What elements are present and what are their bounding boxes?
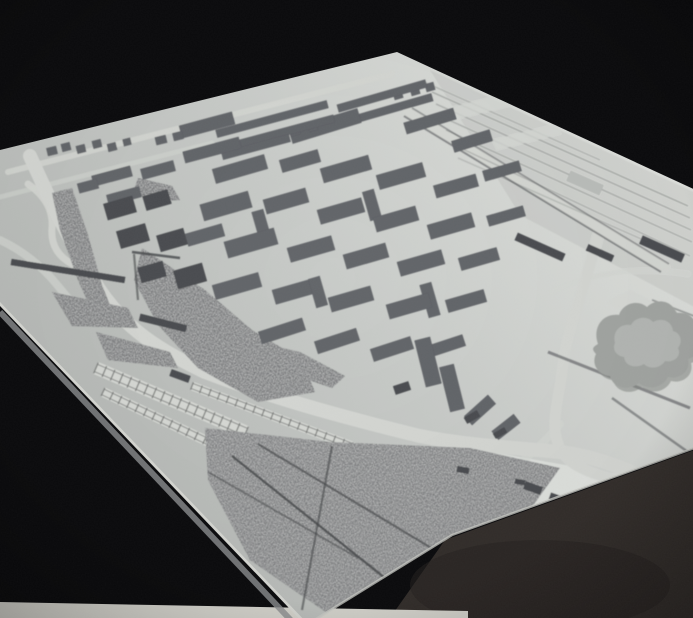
model-photo-svg: [0, 0, 693, 618]
photo-grain: [0, 0, 693, 618]
photo-architectural-model: [0, 0, 693, 618]
